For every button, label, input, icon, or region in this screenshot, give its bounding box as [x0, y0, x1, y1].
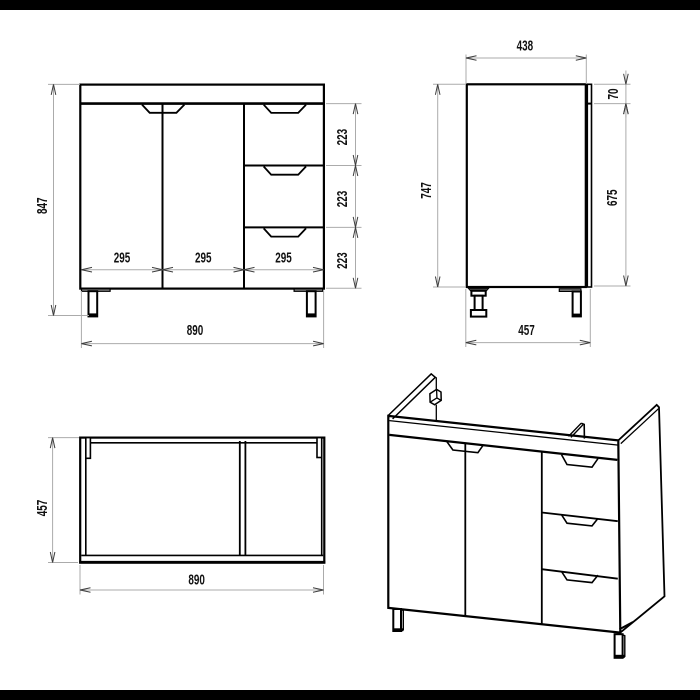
svg-text:295: 295	[195, 250, 211, 267]
svg-text:223: 223	[334, 129, 351, 145]
svg-text:223: 223	[334, 191, 351, 207]
svg-text:295: 295	[275, 250, 291, 267]
svg-text:747: 747	[418, 182, 435, 198]
svg-text:223: 223	[334, 252, 351, 268]
svg-text:457: 457	[34, 500, 51, 516]
svg-text:890: 890	[188, 572, 204, 589]
svg-text:457: 457	[518, 322, 534, 339]
svg-text:70: 70	[605, 88, 622, 99]
svg-text:675: 675	[604, 189, 621, 205]
svg-text:295: 295	[114, 250, 130, 267]
svg-text:890: 890	[187, 322, 203, 339]
svg-text:438: 438	[517, 38, 533, 55]
svg-text:847: 847	[34, 198, 51, 214]
